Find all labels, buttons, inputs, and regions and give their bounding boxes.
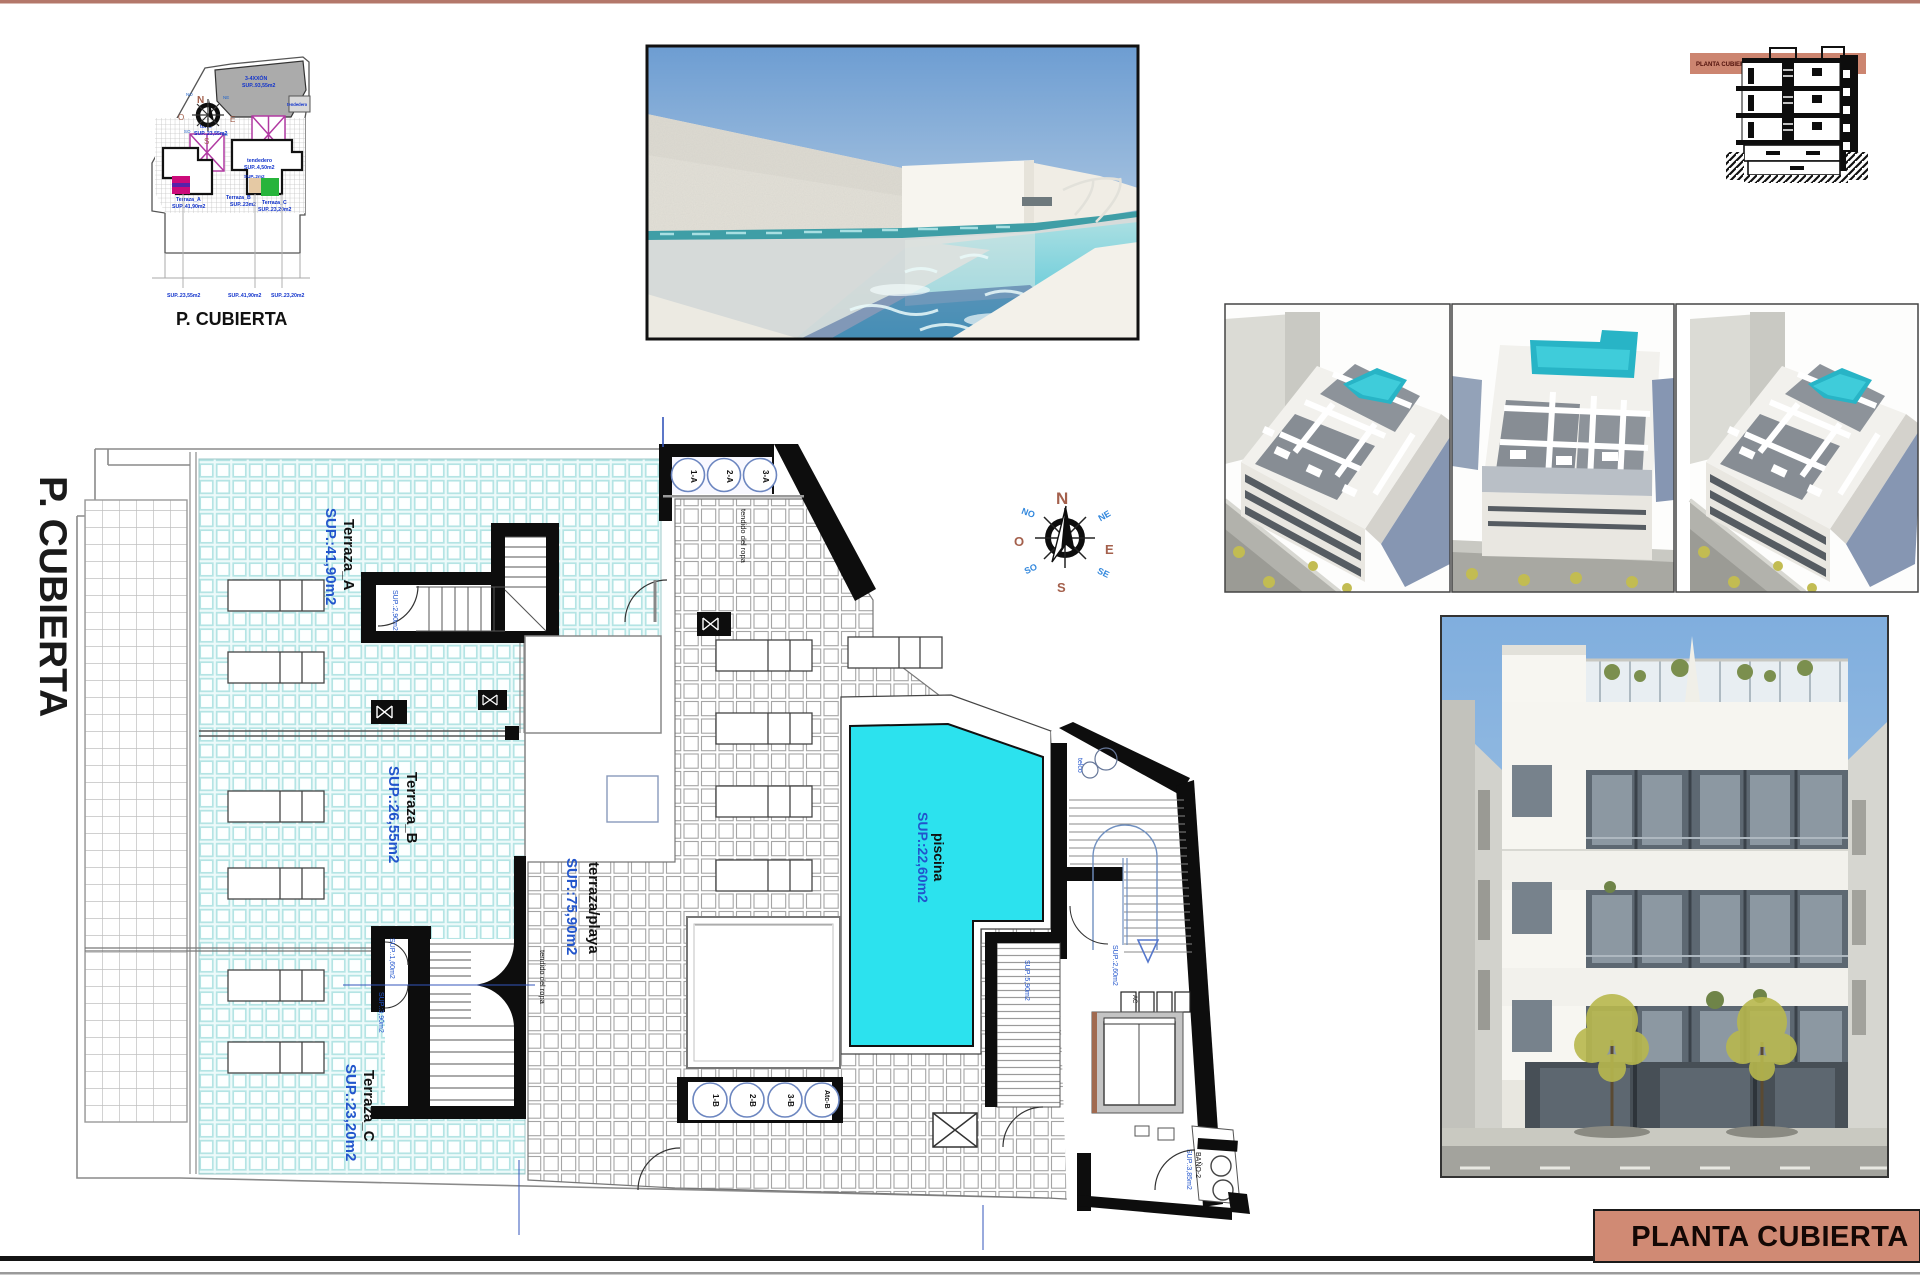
svg-text:3-B: 3-B — [786, 1094, 795, 1107]
svg-text:SUP..93,55m2: SUP..93,55m2 — [242, 83, 275, 89]
svg-text:SUP.:1,60m2: SUP.:1,60m2 — [388, 938, 395, 979]
svg-text:SUP..41,90m2: SUP..41,90m2 — [172, 204, 205, 210]
svg-text:SUP.:5,90m2: SUP.:5,90m2 — [1023, 960, 1030, 1001]
svg-text:SUP..23m2: SUP..23m2 — [230, 202, 256, 208]
svg-text:SUP.:23,20m2: SUP.:23,20m2 — [342, 1064, 359, 1161]
svg-text:AC: AC — [1131, 995, 1137, 1004]
svg-text:SUP.:75,90m2: SUP.:75,90m2 — [563, 858, 580, 955]
svg-text:SO: SO — [184, 129, 191, 134]
svg-text:tendido del ropa: tendido del ropa — [739, 509, 748, 564]
svg-text:3-A: 3-A — [761, 470, 770, 483]
svg-text:SUP..23,20m2: SUP..23,20m2 — [258, 207, 291, 213]
svg-text:Atc-B: Atc-B — [823, 1090, 830, 1109]
svg-text:N: N — [1056, 489, 1068, 508]
svg-text:P. CUBIERTA: P. CUBIERTA — [31, 476, 74, 717]
svg-text:tendedero: tendedero — [287, 102, 308, 107]
svg-text:Terraza_C: Terraza_C — [360, 1070, 377, 1142]
svg-text:Terraza_B: Terraza_B — [403, 772, 420, 844]
svg-text:SUP..23,20m2: SUP..23,20m2 — [271, 293, 304, 299]
svg-text:NE: NE — [223, 95, 229, 100]
svg-text:SUP.:41,90m2: SUP.:41,90m2 — [322, 508, 339, 605]
svg-text:terraza/playa: terraza/playa — [585, 862, 602, 954]
svg-text:2-B: 2-B — [748, 1094, 757, 1107]
svg-text:SUP..41,90m2: SUP..41,90m2 — [228, 293, 261, 299]
svg-text:1-A: 1-A — [689, 470, 698, 483]
svg-text:tendedero: tendedero — [247, 158, 272, 164]
svg-text:BAÑO-2: BAÑO-2 — [1194, 1152, 1203, 1178]
svg-text:tendido del ropa: tendido del ropa — [538, 950, 547, 1005]
svg-text:SUP.:2,90m2: SUP.:2,90m2 — [391, 590, 398, 631]
svg-text:N: N — [197, 95, 204, 106]
svg-text:Terraza_B: Terraza_B — [226, 195, 251, 201]
svg-text:E: E — [230, 115, 235, 124]
svg-text:2-A: 2-A — [725, 470, 734, 483]
svg-text:Terraza_A: Terraza_A — [340, 519, 357, 591]
svg-text:3-4XXÓN: 3-4XXÓN — [245, 74, 267, 82]
svg-text:SUP..23,55m2: SUP..23,55m2 — [167, 293, 200, 299]
svg-text:PLANTA CUBIERTA: PLANTA CUBIERTA — [1631, 1221, 1909, 1253]
svg-text:Terraza_A: Terraza_A — [176, 197, 201, 203]
svg-text:SUP.:2,60m2: SUP.:2,60m2 — [1111, 945, 1118, 986]
svg-text:1-B: 1-B — [711, 1094, 720, 1107]
svg-text:P. CUBIERTA: P. CUBIERTA — [176, 309, 287, 329]
svg-text:SUP.:3,90m2: SUP.:3,90m2 — [377, 992, 384, 1033]
svg-text:SUP.:26,55m2: SUP.:26,55m2 — [385, 766, 402, 863]
svg-text:S: S — [1057, 580, 1066, 595]
svg-text:E: E — [1105, 542, 1114, 557]
svg-text:piscina: piscina — [931, 833, 947, 881]
svg-text:O: O — [1014, 534, 1024, 549]
svg-text:NO: NO — [186, 92, 193, 97]
svg-text:Terraza_C: Terraza_C — [262, 200, 287, 206]
svg-text:SUP.:3,85m2: SUP.:3,85m2 — [1185, 1149, 1192, 1190]
svg-text:SE: SE — [222, 132, 228, 137]
svg-text:O: O — [178, 113, 184, 122]
svg-text:SUP..2m2: SUP..2m2 — [244, 174, 265, 179]
svg-text:SUP..4,50m2: SUP..4,50m2 — [244, 165, 275, 171]
svg-text:telco: telco — [1076, 758, 1083, 773]
svg-text:S: S — [204, 137, 209, 146]
svg-text:SUP.:22,60m2: SUP.:22,60m2 — [915, 812, 931, 903]
